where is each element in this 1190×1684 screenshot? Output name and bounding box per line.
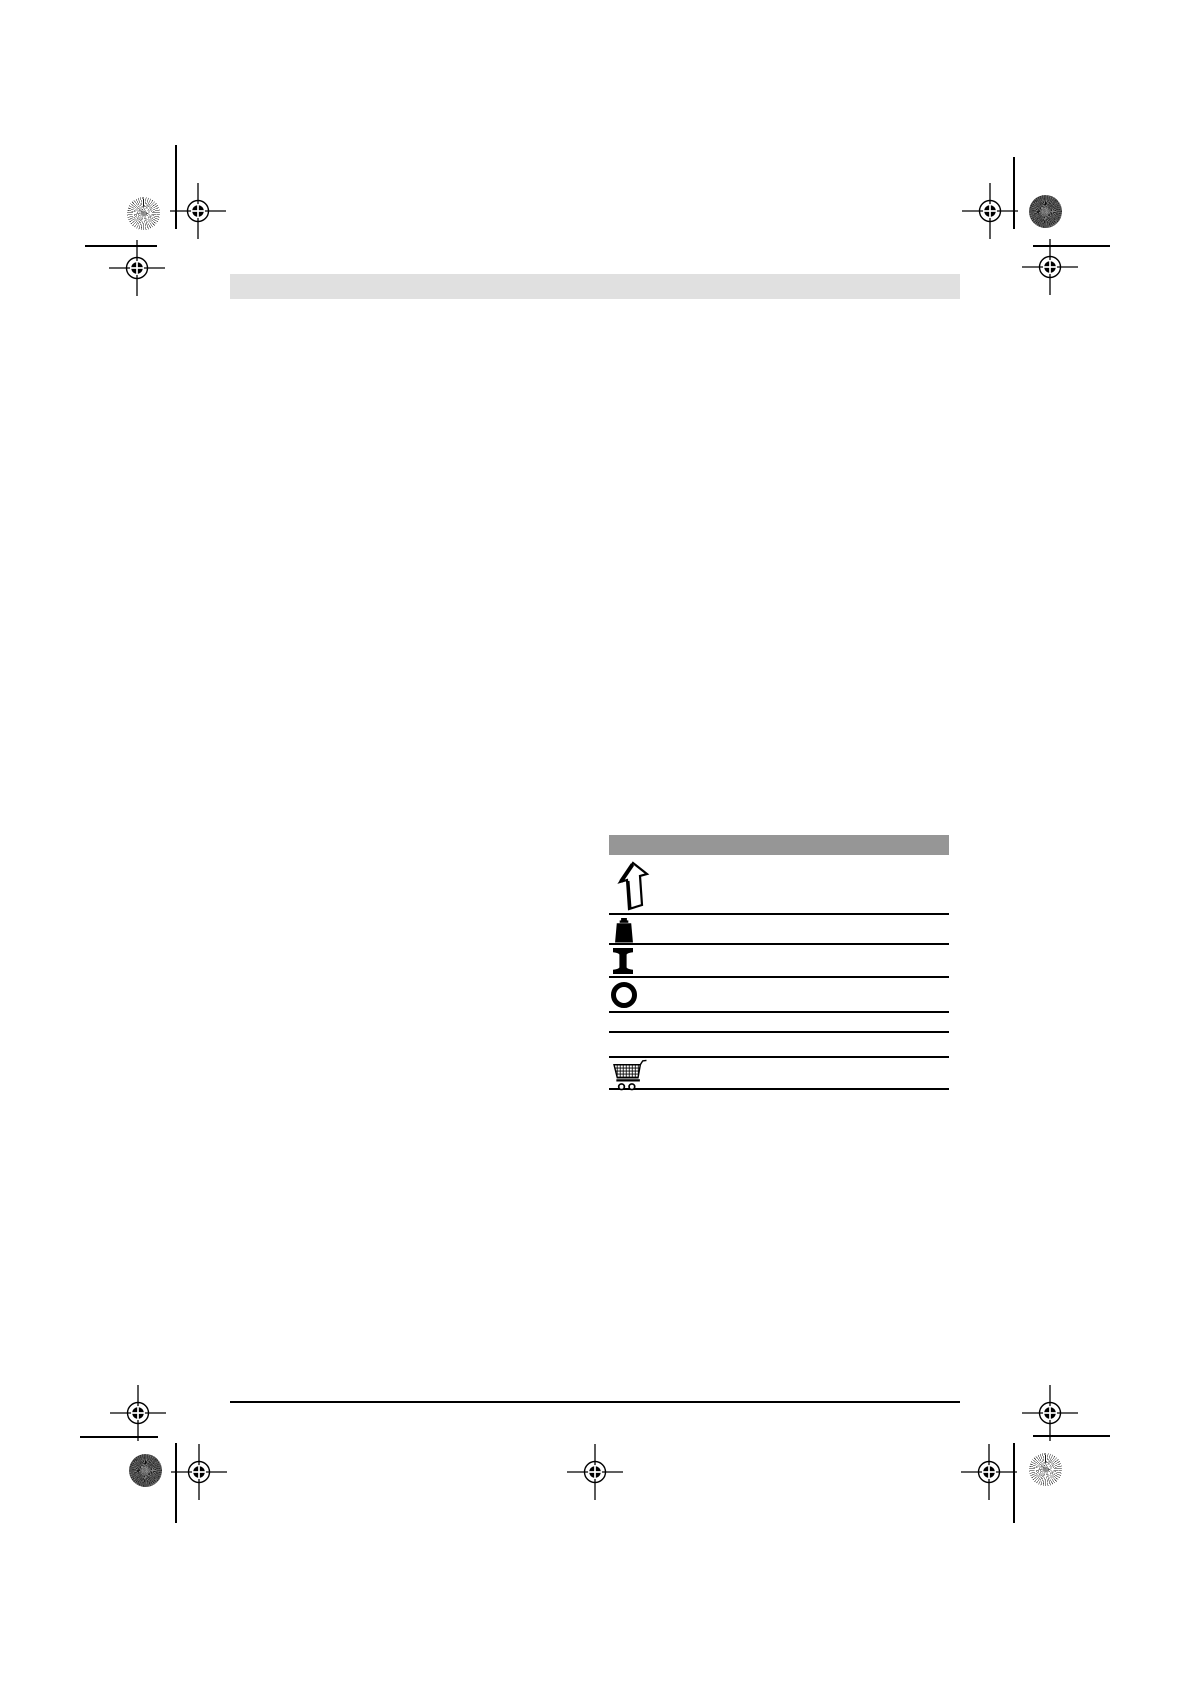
color-patch-granite-icon	[129, 1454, 162, 1487]
document-page	[0, 0, 1190, 1684]
capital-o-symbol-icon	[610, 981, 638, 1009]
registration-mark-icon	[565, 1442, 625, 1502]
footer-rule	[230, 1401, 960, 1403]
registration-mark-icon	[1020, 237, 1080, 297]
color-patch-starburst-icon	[127, 197, 160, 230]
symbols-table-row	[609, 915, 949, 945]
color-patch-granite-icon	[1029, 195, 1062, 228]
direction-arrow-icon	[611, 861, 653, 911]
symbols-table-row	[609, 978, 949, 1013]
trim-line	[1013, 157, 1015, 229]
symbols-table-header	[609, 835, 949, 855]
symbols-table-row	[609, 1058, 949, 1090]
trim-line	[1033, 1435, 1110, 1437]
registration-mark-icon	[108, 1383, 168, 1443]
registration-mark-icon	[959, 1442, 1019, 1502]
weight-icon	[612, 918, 636, 943]
registration-mark-icon	[1020, 1383, 1080, 1443]
registration-mark-icon	[169, 1442, 229, 1502]
symbols-table-row	[609, 855, 949, 915]
capital-i-symbol-icon	[612, 948, 634, 974]
symbols-table	[609, 835, 949, 1090]
registration-mark-icon	[168, 181, 228, 241]
shopping-cart-icon	[610, 1059, 650, 1091]
trim-line	[80, 1436, 158, 1438]
trim-line	[1013, 1443, 1015, 1523]
symbols-table-row	[609, 1013, 949, 1033]
symbols-table-row	[609, 1033, 949, 1058]
registration-mark-icon	[107, 238, 167, 298]
page-header-bar	[230, 274, 960, 299]
color-patch-starburst-icon	[1029, 1453, 1062, 1486]
registration-mark-icon	[960, 181, 1020, 241]
symbols-table-row	[609, 945, 949, 978]
